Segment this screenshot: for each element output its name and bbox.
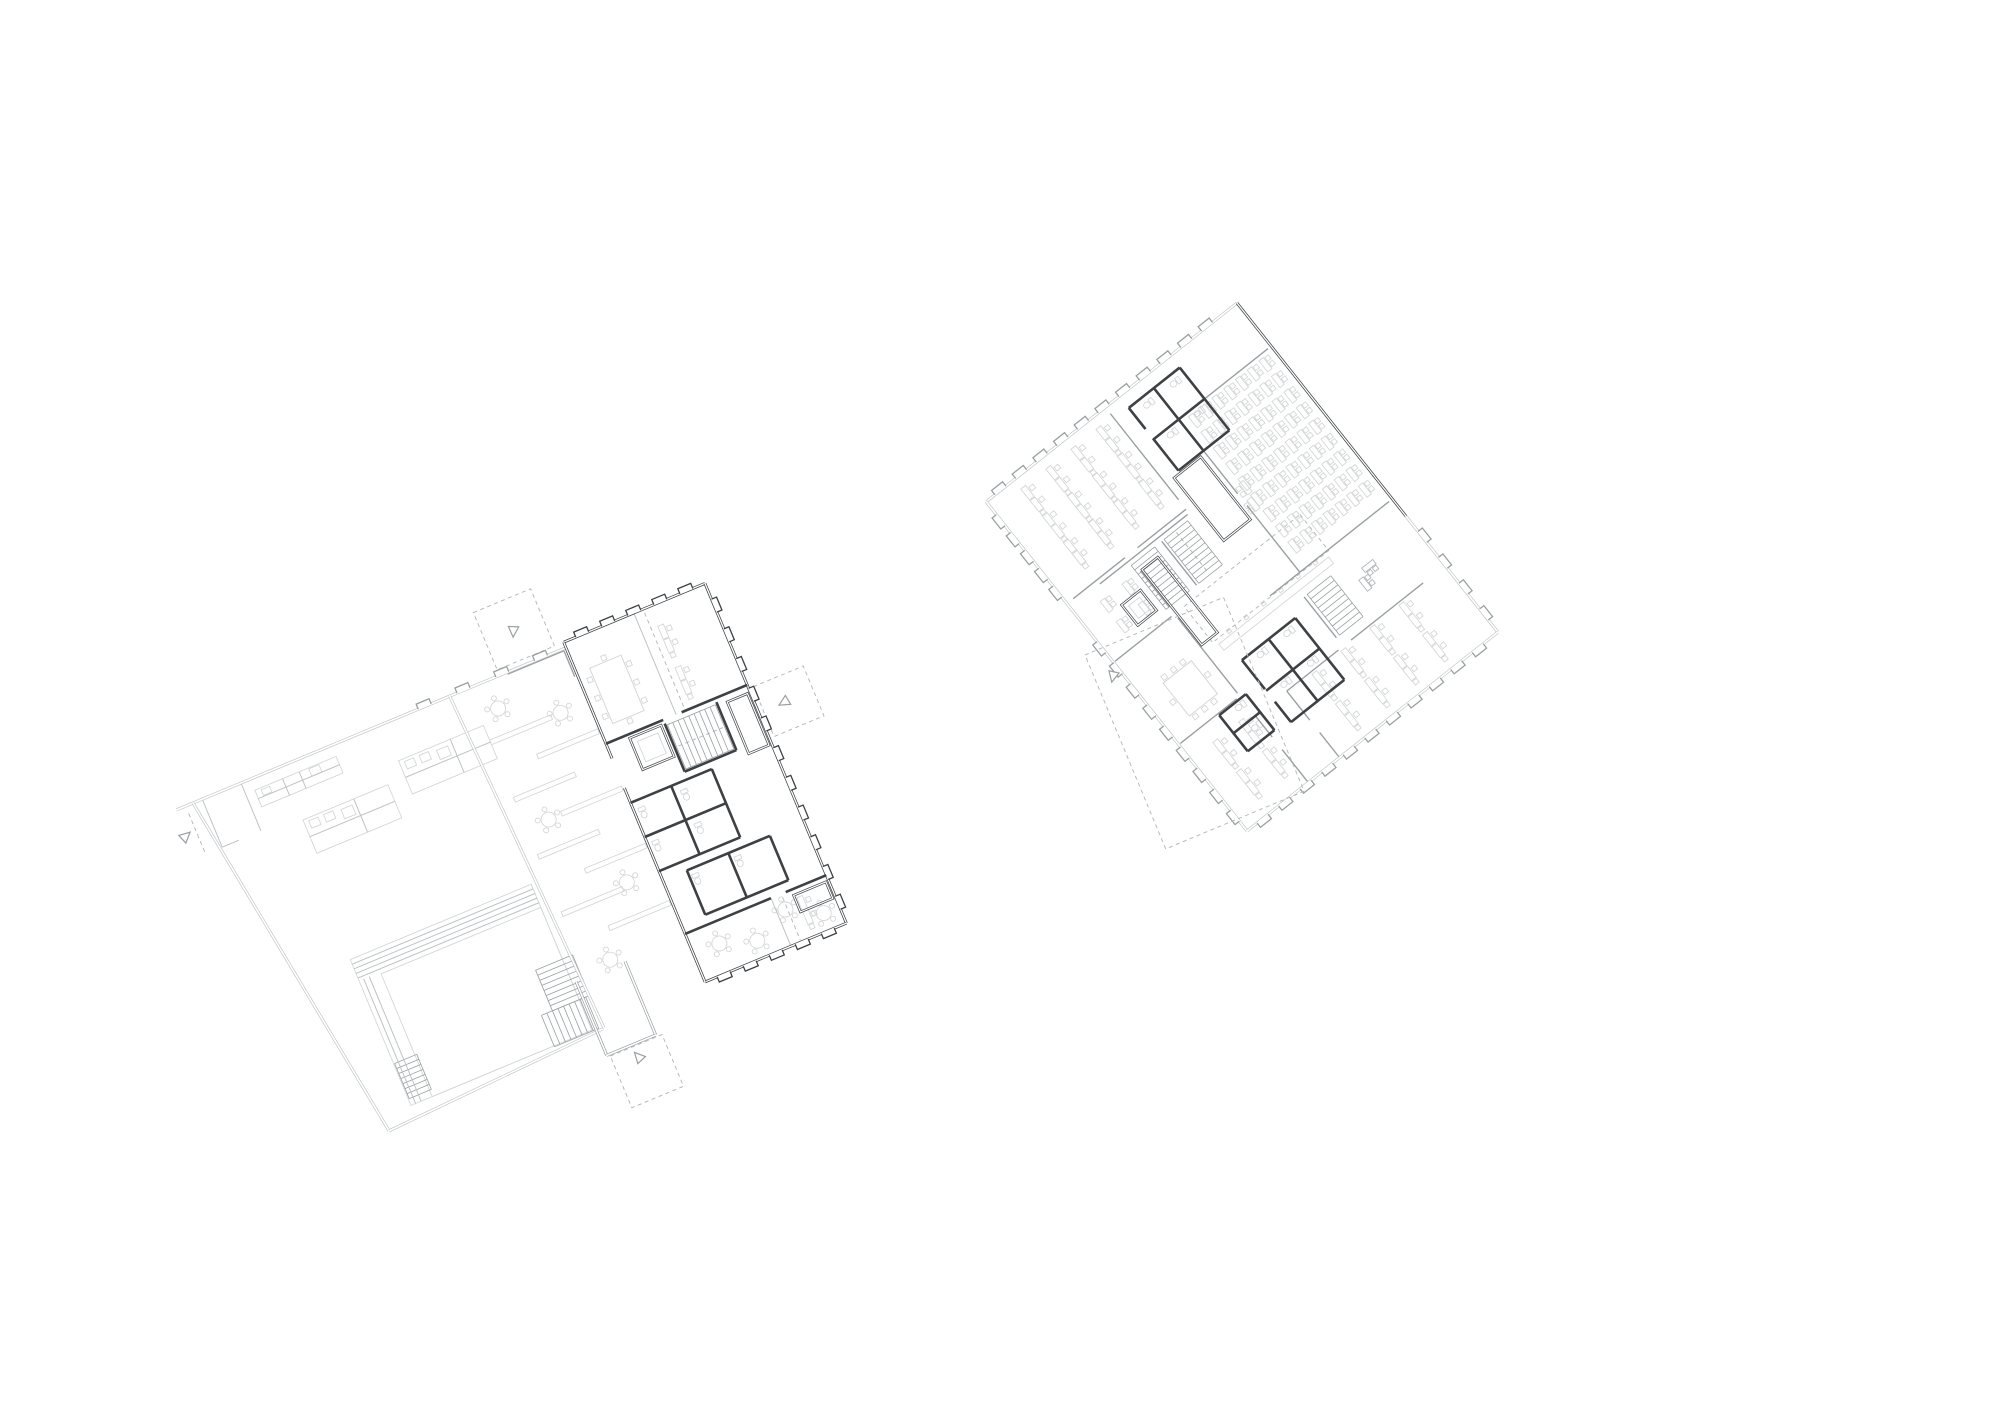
sheet-background <box>0 0 2000 1414</box>
floor-plans-drawing <box>0 0 2000 1414</box>
floor-plan-sheet <box>0 0 2000 1414</box>
